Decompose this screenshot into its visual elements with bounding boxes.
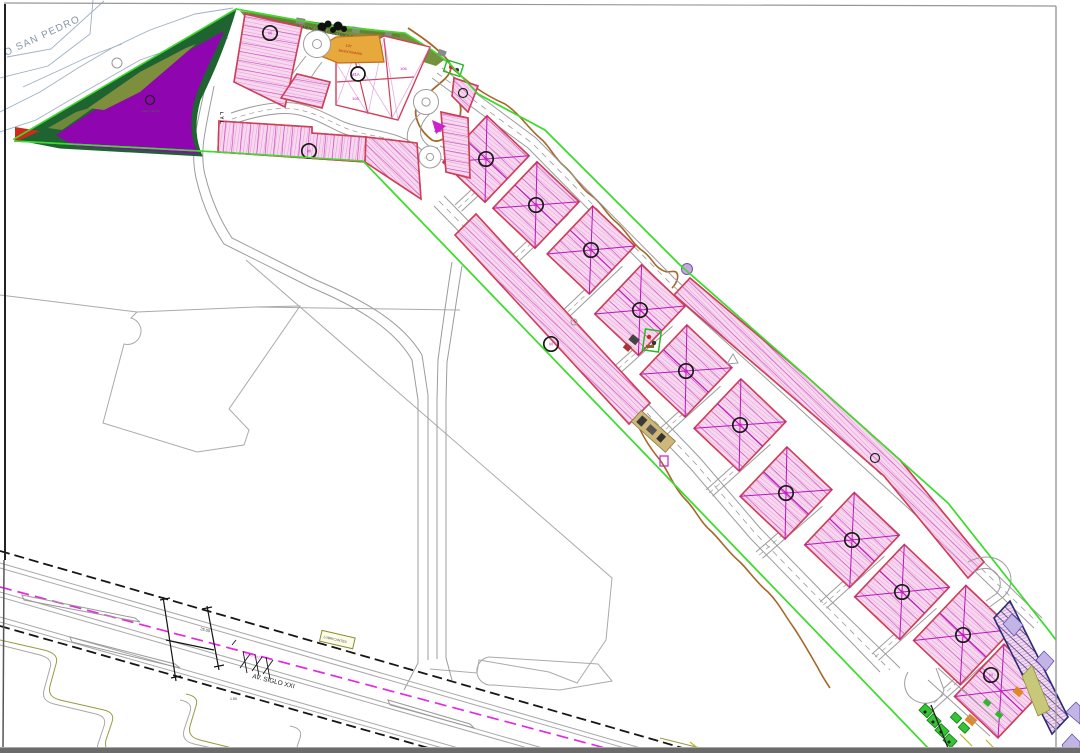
- svg-text:M1A: M1A: [351, 72, 360, 77]
- svg-text:M: M: [961, 633, 965, 638]
- svg-text:AREA VERDE: AREA VERDE: [141, 109, 160, 113]
- svg-text:M: M: [307, 149, 311, 154]
- svg-text:M: M: [589, 248, 593, 253]
- svg-text:M: M: [549, 342, 553, 347]
- svg-text:M: M: [738, 423, 742, 428]
- svg-text:M: M: [684, 369, 688, 374]
- svg-text:M: M: [784, 491, 788, 496]
- svg-text:M: M: [850, 538, 854, 543]
- svg-text:M: M: [989, 673, 993, 678]
- svg-text:M: M: [638, 308, 642, 313]
- svg-text:L Y L: L Y L: [218, 112, 224, 124]
- svg-text:105: 105: [352, 96, 359, 101]
- svg-text:1.50: 1.50: [230, 697, 237, 701]
- svg-text:M: M: [900, 590, 904, 595]
- svg-text:M: M: [484, 157, 488, 162]
- svg-text:M: M: [534, 203, 538, 208]
- svg-text:M: M: [268, 31, 272, 36]
- svg-text:18: 18: [434, 127, 442, 134]
- svg-text:106: 106: [400, 66, 407, 71]
